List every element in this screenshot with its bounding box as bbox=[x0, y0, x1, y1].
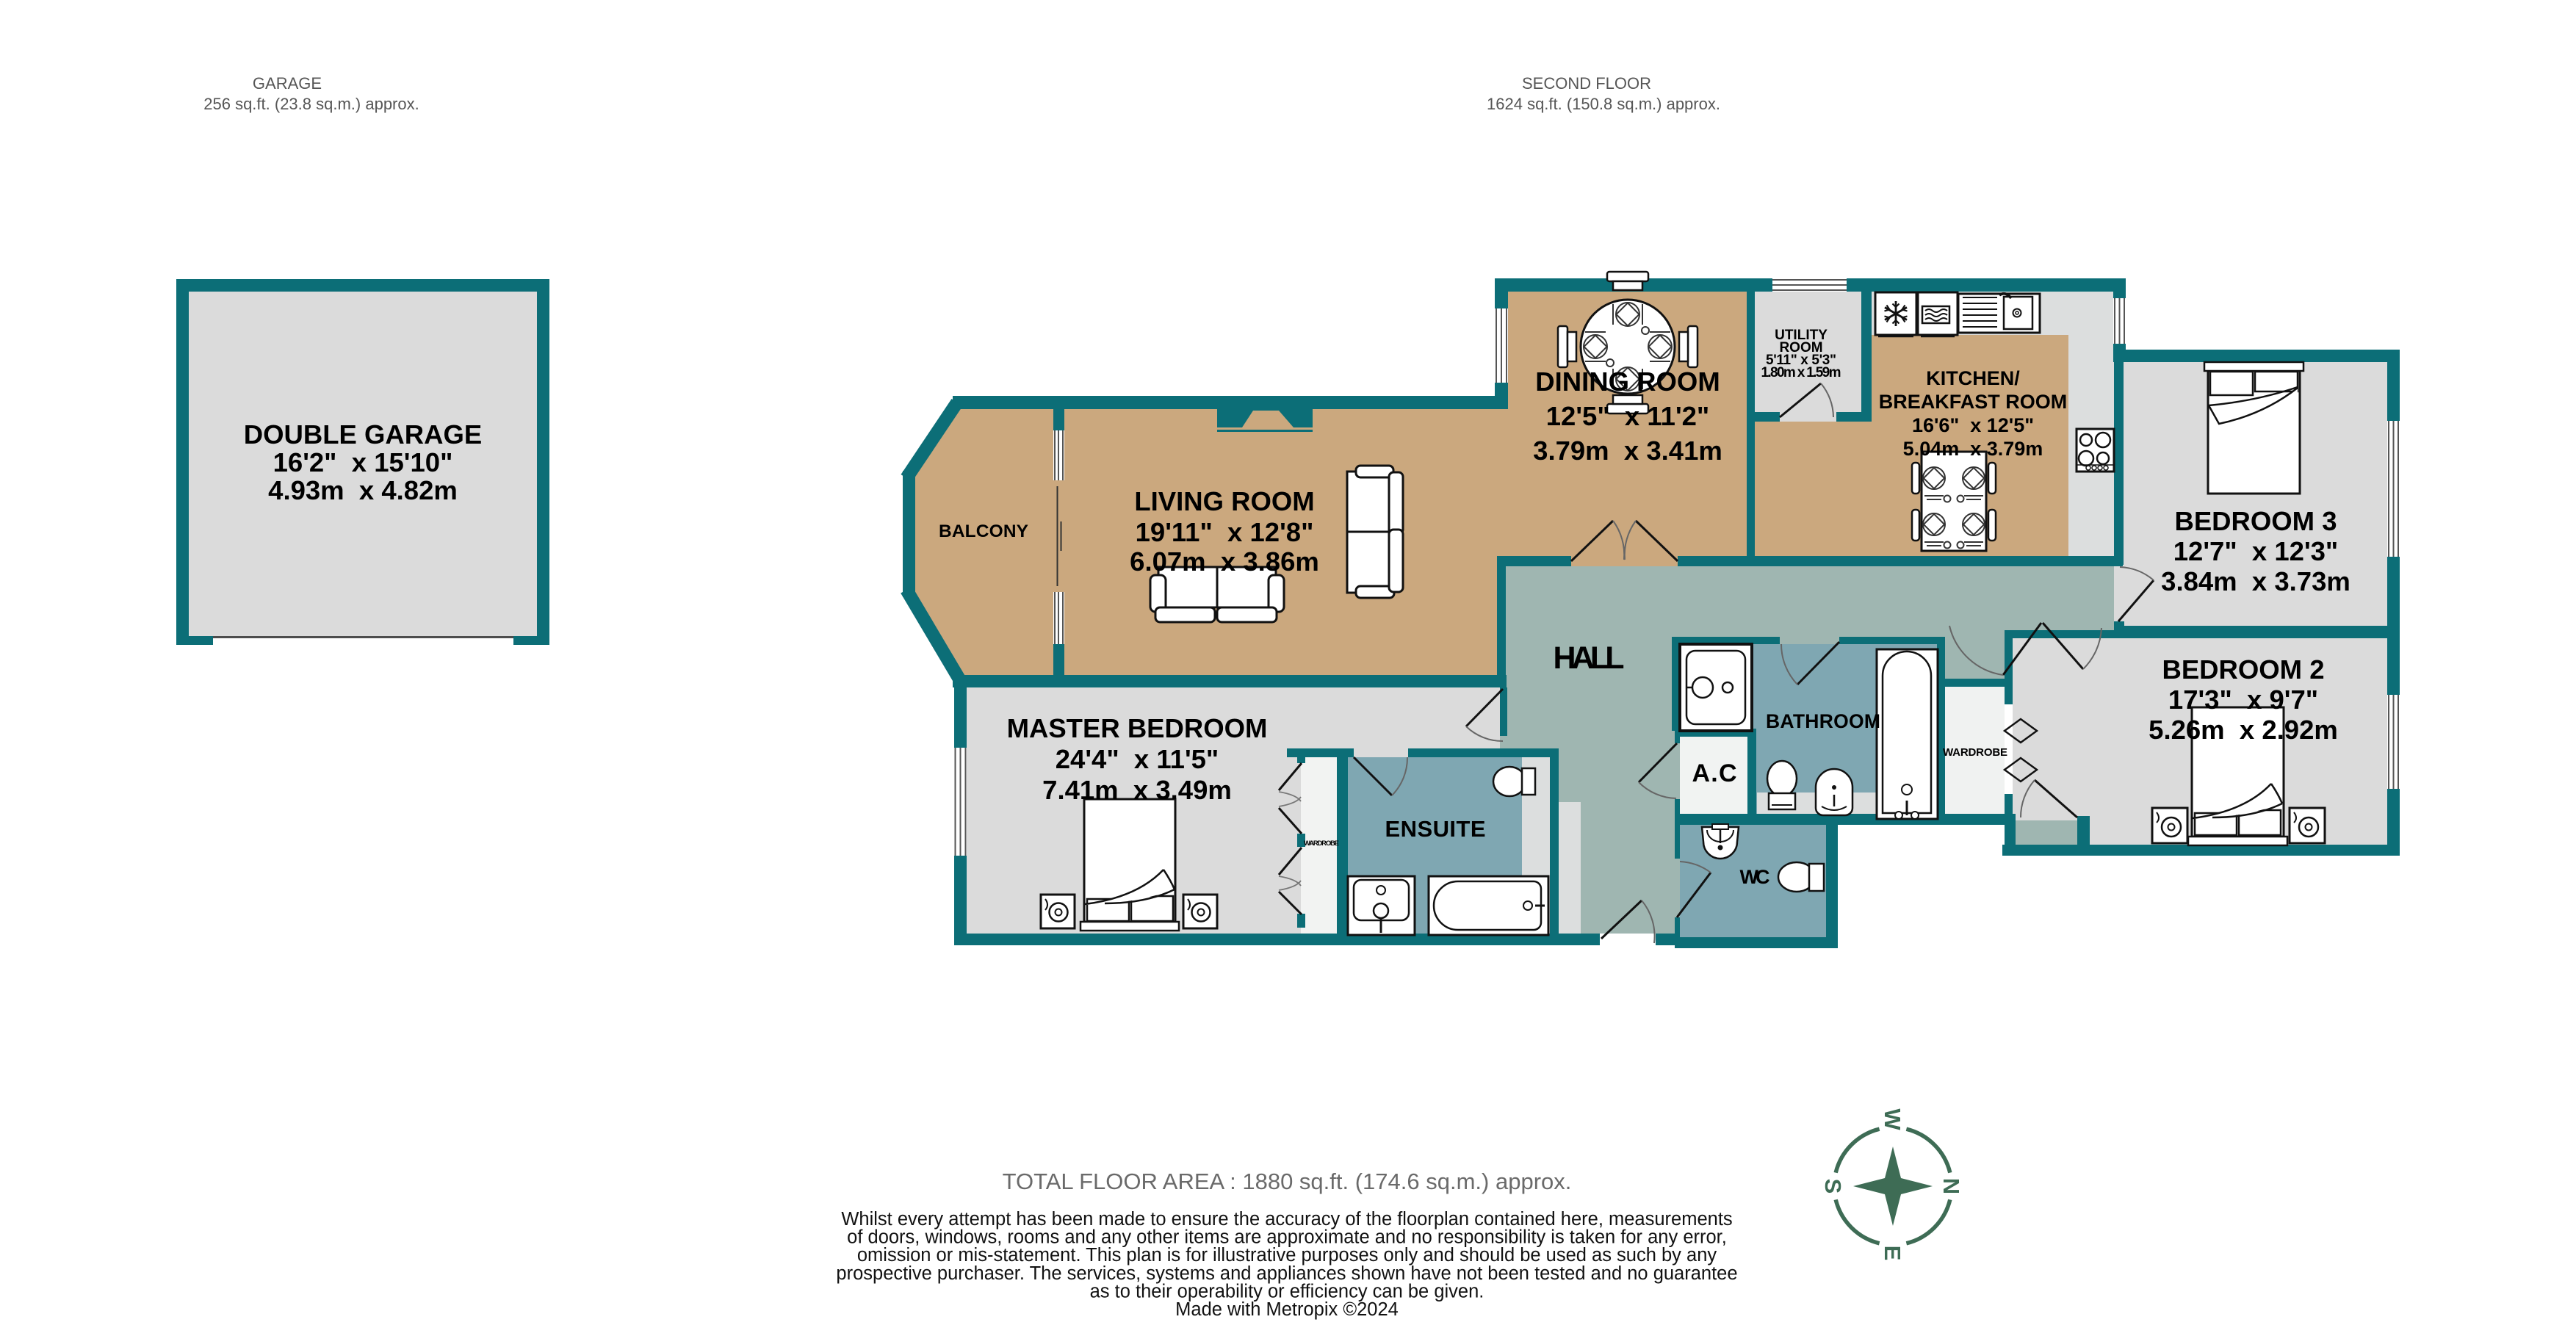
svg-text:4.93m x 4.82m: 4.93m x 4.82m bbox=[268, 475, 458, 505]
svg-text:SECOND FLOOR: SECOND FLOOR bbox=[1522, 74, 1651, 93]
svg-text:GARAGE: GARAGE bbox=[253, 74, 322, 93]
svg-text:S: S bbox=[1820, 1179, 1846, 1194]
svg-text:MASTER BEDROOM: MASTER BEDROOM bbox=[1007, 713, 1268, 743]
svg-text:BALCONY: BALCONY bbox=[939, 521, 1028, 541]
svg-text:16'2" x 15'10": 16'2" x 15'10" bbox=[273, 447, 453, 477]
svg-text:BATHROOM: BATHROOM bbox=[1766, 710, 1880, 732]
svg-text:E: E bbox=[1880, 1246, 1905, 1261]
svg-text:19'11" x 12'8": 19'11" x 12'8" bbox=[1136, 517, 1314, 547]
svg-text:A.C: A.C bbox=[1692, 759, 1737, 787]
svg-text:WARDROBE: WARDROBE bbox=[1304, 840, 1339, 848]
svg-text:DOUBLE GARAGE: DOUBLE GARAGE bbox=[244, 419, 482, 450]
svg-text:5.26m x 2.92m: 5.26m x 2.92m bbox=[2149, 715, 2338, 745]
svg-text:ENSUITE: ENSUITE bbox=[1385, 816, 1486, 842]
svg-text:N: N bbox=[1938, 1178, 1964, 1194]
svg-text:W: W bbox=[1880, 1108, 1905, 1130]
svg-text:LIVING ROOM: LIVING ROOM bbox=[1134, 486, 1314, 516]
svg-text:HALL: HALL bbox=[1554, 640, 1625, 676]
svg-text:256 sq.ft. (23.8 sq.m.) approx: 256 sq.ft. (23.8 sq.m.) approx. bbox=[203, 95, 419, 113]
svg-text:6.07m x 3.86m: 6.07m x 3.86m bbox=[1130, 546, 1319, 577]
svg-text:12'7" x 12'3": 12'7" x 12'3" bbox=[2173, 536, 2339, 566]
svg-text:KITCHEN/: KITCHEN/ bbox=[1926, 367, 2020, 389]
svg-text:WC: WC bbox=[1740, 866, 1770, 888]
svg-text:12'5" x 11'2": 12'5" x 11'2" bbox=[1546, 401, 1709, 431]
svg-text:1624 sq.ft. (150.8 sq.m.) appr: 1624 sq.ft. (150.8 sq.m.) approx. bbox=[1487, 95, 1720, 113]
svg-text:DINING ROOM: DINING ROOM bbox=[1535, 367, 1720, 397]
svg-text:3.84m x 3.73m: 3.84m x 3.73m bbox=[2161, 566, 2350, 596]
svg-text:WARDROBE: WARDROBE bbox=[1943, 746, 2007, 759]
svg-text:3.79m x 3.41m: 3.79m x 3.41m bbox=[1533, 436, 1722, 466]
svg-text:BEDROOM 3: BEDROOM 3 bbox=[2174, 506, 2337, 536]
svg-text:1.80m x 1.59m: 1.80m x 1.59m bbox=[1761, 365, 1841, 380]
svg-text:TOTAL FLOOR AREA : 1880 sq.ft.: TOTAL FLOOR AREA : 1880 sq.ft. (174.6 sq… bbox=[1003, 1169, 1572, 1194]
svg-text:BEDROOM 2: BEDROOM 2 bbox=[2162, 654, 2324, 685]
svg-text:17'3" x 9'7": 17'3" x 9'7" bbox=[2168, 685, 2318, 715]
svg-text:Made with Metropix ©2024: Made with Metropix ©2024 bbox=[1175, 1299, 1399, 1320]
svg-text:24'4" x 11'5": 24'4" x 11'5" bbox=[1056, 744, 1219, 774]
svg-text:BREAKFAST ROOM: BREAKFAST ROOM bbox=[1879, 391, 2068, 413]
svg-text:5.04m x 3.79m: 5.04m x 3.79m bbox=[1903, 438, 2043, 460]
svg-text:7.41m x 3.49m: 7.41m x 3.49m bbox=[1042, 775, 1232, 805]
svg-text:16'6" x 12'5": 16'6" x 12'5" bbox=[1912, 414, 2034, 436]
